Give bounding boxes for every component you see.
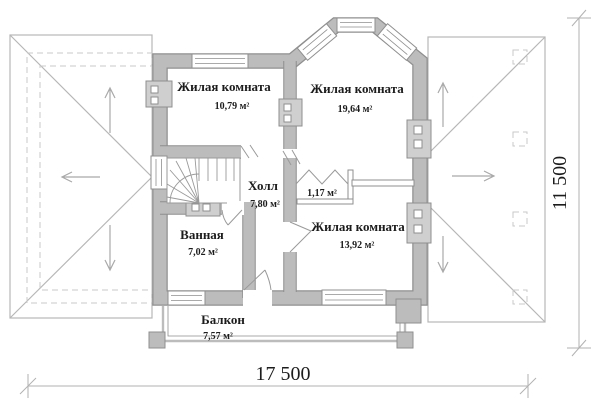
room-living3-area: 13,92 м²: [340, 240, 375, 251]
room-bathroom-area: 7,02 м²: [188, 247, 218, 258]
closet-bifold-doors: [296, 170, 348, 184]
floor-plan-page: 17 500 11 500 Жилая комната 10,79 м² Жил…: [0, 0, 600, 403]
bathroom-door-opening: [227, 201, 244, 215]
balcony-post-right: [397, 332, 413, 348]
room-living3-name: Жилая комната: [311, 219, 405, 234]
living3-door: [290, 222, 311, 252]
window-top: [192, 54, 248, 68]
window-stair-left: [151, 156, 167, 189]
slope-arrow-up-icon: [438, 83, 448, 127]
balcony-post-left: [149, 332, 165, 348]
closet-bottom-wall: [297, 199, 353, 204]
balcony-door-opening: [243, 290, 272, 306]
room-living2-area: 19,64 м²: [338, 104, 373, 115]
vent-block-right-wall-upper: [407, 120, 431, 158]
room-hall-area: 7,80 м²: [250, 199, 280, 210]
living2-living3-divider-wall: [352, 180, 414, 186]
floor-plan-canvas: 17 500 11 500 Жилая комната 10,79 м² Жил…: [0, 0, 600, 403]
bay-window-right: [377, 24, 416, 61]
roof-left: [10, 35, 152, 318]
staircase: [167, 158, 240, 203]
slope-arrow-left-icon: [62, 172, 100, 182]
balcony: [149, 299, 421, 348]
room-living1-name: Жилая комната: [177, 79, 271, 94]
vent-block-right-wall-lower: [407, 203, 431, 243]
dimension-bottom: 17 500: [20, 363, 536, 398]
room-balcony-name: Балкон: [201, 312, 245, 327]
roof-marker-3: [513, 212, 527, 226]
dimension-height-label: 11 500: [549, 156, 571, 210]
room-balcony-area: 7,57 м²: [203, 331, 233, 342]
room-hall-name: Холл: [248, 178, 278, 193]
slope-arrow-up-icon: [105, 88, 115, 133]
slope-arrow-right-icon: [452, 171, 494, 181]
dimension-right: 11 500: [549, 10, 591, 356]
roof-right: [428, 37, 545, 322]
room-living1-area: 10,79 м²: [215, 101, 250, 112]
room-bathroom-name: Ванная: [180, 227, 224, 242]
bay-window-top: [337, 18, 375, 32]
vent-block-left-wall: [146, 81, 172, 107]
roof-left-eaves-dashed-outer: [27, 53, 152, 303]
dimension-width-label: 17 500: [256, 363, 311, 385]
slope-arrow-down-icon: [105, 225, 115, 270]
balcony-pier-right: [396, 299, 421, 323]
vent-block-center-wall: [279, 99, 302, 126]
room-living2-name: Жилая комната: [310, 81, 404, 96]
slope-arrow-down-icon: [438, 236, 448, 272]
window-bathroom: [168, 291, 205, 305]
window-living3: [322, 290, 386, 305]
room-closet-area: 1,17 м²: [307, 188, 337, 199]
roof-left-eaves-dashed-inner: [40, 66, 152, 290]
roof-marker-2: [513, 132, 527, 146]
